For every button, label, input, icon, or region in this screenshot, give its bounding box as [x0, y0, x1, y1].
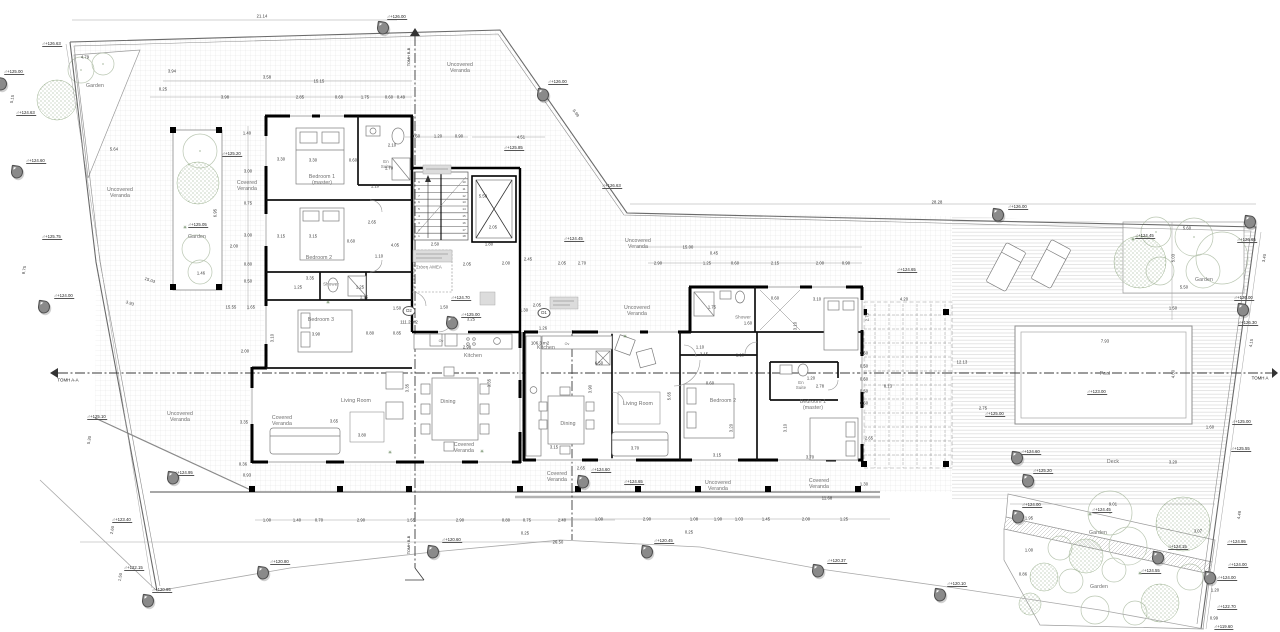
floor-plan: GardenUncovered VerandaCovered VerandaGa…	[0, 0, 1280, 632]
pergola	[861, 302, 952, 468]
plan-linework	[0, 0, 1280, 632]
elevator	[472, 176, 516, 242]
pool	[1015, 326, 1192, 424]
